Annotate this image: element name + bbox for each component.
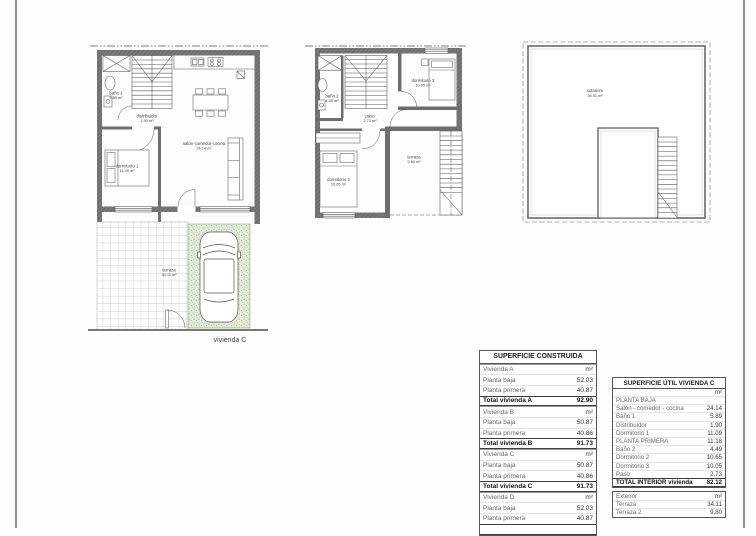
row-value: 82.12 xyxy=(707,479,722,486)
gate-leaf xyxy=(166,310,169,328)
room-area-dormitorio3: 10.05 m² xyxy=(415,83,431,88)
row-label: Planta baja xyxy=(483,377,516,384)
table-row-total: Total vivienda B91.73 xyxy=(480,438,596,449)
stairs xyxy=(132,56,172,109)
room-area-dormitorio1: 11.09 m² xyxy=(119,168,135,173)
row-value: 34.11 xyxy=(707,501,722,508)
row-label: Total vivienda B xyxy=(483,440,532,447)
row-label: Terraza xyxy=(616,501,636,508)
room-area-salon: 24.14 m² xyxy=(196,146,212,151)
row-value: 40.87 xyxy=(577,387,593,394)
room-area-banyo1: 5.89 m² xyxy=(109,95,123,100)
row-label: PLANTA BAJA xyxy=(616,397,656,404)
row-label: Dormitorio 2 xyxy=(616,454,649,461)
sheet-border-right xyxy=(743,0,745,528)
toilet xyxy=(318,100,325,110)
table-row: Dormitorio 111.09 xyxy=(613,429,725,437)
row-value: 91.73 xyxy=(577,440,593,447)
room-area-dormitorio2: 10.65 m² xyxy=(331,182,347,187)
row-value: 11.18 xyxy=(707,438,722,445)
room-area-distribuidor: 1.90 m² xyxy=(140,118,154,123)
closet-wardrobe xyxy=(318,56,342,71)
car-top-view xyxy=(198,232,241,322)
table-row: Terraza34.11 xyxy=(613,500,725,508)
sofa xyxy=(228,138,243,200)
sheet-border-left xyxy=(15,0,17,528)
row-label: Vivienda D xyxy=(483,494,514,501)
row-label: Planta baja xyxy=(483,462,516,469)
row-value: 50.87 xyxy=(577,462,593,469)
row-label: Exterior xyxy=(616,493,637,500)
row-label: Planta primera xyxy=(483,387,525,394)
table-superficie-construida: SUPERFICIE CONSTRUIDA Vivienda Am² Plant… xyxy=(479,350,597,536)
row-value: m² xyxy=(715,389,722,396)
stairs xyxy=(345,56,387,109)
table-row-total: TOTAL INTERIOR vivienda82.12 xyxy=(613,478,725,488)
page: { "sheet": { "caption_vivienda": "vivien… xyxy=(0,0,756,528)
door-opening xyxy=(178,206,196,213)
door-swing xyxy=(362,131,380,149)
plan-caption: vivienda C xyxy=(214,337,247,344)
floorplan-solarium: solarium 35.91 m² xyxy=(518,36,718,228)
door-swing xyxy=(402,92,417,107)
row-value: 1.90 xyxy=(710,422,722,429)
table-row: Planta primera40.87 xyxy=(480,513,596,524)
table-row-total: Total vivienda A92.90 xyxy=(480,396,596,407)
washbasin xyxy=(105,76,115,90)
row-value: 92.90 xyxy=(577,397,593,404)
row-value: 10.05 xyxy=(707,463,722,470)
row-value: 91.73 xyxy=(577,483,593,490)
closet-wardrobe xyxy=(103,56,130,72)
room-area-terraza: 34.11 m² xyxy=(161,272,177,277)
row-value: 10.65 xyxy=(707,454,722,461)
table-row: Dormitorio 210.65 xyxy=(613,453,725,461)
row-label: Planta baja xyxy=(483,505,516,512)
table-row: Salón - comedor - cocina24.14 xyxy=(613,404,725,412)
row-label: Vivienda C xyxy=(483,451,514,458)
stairwell-void xyxy=(598,128,658,218)
table-row: Vivienda Am² xyxy=(480,364,596,375)
row-label: Paso xyxy=(616,471,630,478)
row-label: TOTAL INTERIOR vivienda xyxy=(616,479,693,486)
table-row: Baño 24.49 xyxy=(613,445,725,453)
door-swing xyxy=(390,110,407,127)
table-row-unit: m² xyxy=(613,389,725,396)
row-value: m² xyxy=(585,494,593,501)
table-row: Baño 15.89 xyxy=(613,412,725,420)
door-swing xyxy=(118,106,132,120)
table-title: SUPERFICIE CONSTRUIDA xyxy=(480,351,596,364)
washbasin xyxy=(318,79,327,92)
table-row-total: Total vivienda C91.73 xyxy=(480,481,596,492)
row-label: Planta primera xyxy=(483,473,525,480)
row-value: 40.86 xyxy=(577,430,593,437)
row-label: Terraza 2 xyxy=(616,509,641,516)
table-row: PLANTA PRIMERA11.18 xyxy=(613,437,725,445)
dining-table xyxy=(193,89,228,116)
row-value: 52.03 xyxy=(577,377,593,384)
table-row: Planta baja52.03 xyxy=(480,502,596,513)
table-row: PLANTA BAJA xyxy=(613,396,725,404)
row-value: 11.09 xyxy=(707,430,722,437)
row-label: Distribuidor xyxy=(616,422,647,429)
row-value: 50.87 xyxy=(577,419,593,426)
row-value: 2.73 xyxy=(710,471,722,478)
row-value: 52.03 xyxy=(577,505,593,512)
row-label: PLANTA PRIMERA xyxy=(616,438,668,445)
floorplan-planta-baja: baño 1 5.89 m² distribuidor 1.90 m² saló… xyxy=(88,38,278,352)
row-value: 40.86 xyxy=(577,473,593,480)
door-swing xyxy=(132,130,154,152)
table-row: Vivienda Cm² xyxy=(480,449,596,460)
table-row: Paso2.73 xyxy=(613,470,725,478)
stairs-to-solarium xyxy=(440,131,462,215)
table-row: Dormitorio 310.05 xyxy=(613,462,725,470)
table-title: SUPERFICIE ÚTIL VIVIENDA C xyxy=(613,378,725,389)
row-label: Salón - comedor - cocina xyxy=(616,405,684,412)
row-value: 40.87 xyxy=(577,515,593,522)
table-row: Exteriorm² xyxy=(613,492,725,500)
row-label: Planta primera xyxy=(483,430,525,437)
room-area-solarium: 35.91 m² xyxy=(587,93,603,98)
row-value: 5.89 xyxy=(710,413,722,420)
table-row: Vivienda Dm² xyxy=(480,492,596,503)
table-row: Planta baja52.03 xyxy=(480,374,596,385)
row-label: Dormitorio 3 xyxy=(616,463,649,470)
table-row: Terraza 29.80 xyxy=(613,508,725,516)
row-value: m² xyxy=(585,366,593,373)
row-value: 4.49 xyxy=(710,446,722,453)
row-value: 9.80 xyxy=(710,509,722,516)
table-row-clipped xyxy=(480,524,596,535)
room-area-paso: 2.73 m² xyxy=(363,118,377,123)
row-value: m² xyxy=(585,451,593,458)
row-value: m² xyxy=(715,493,722,500)
table-row: Vivienda Bm² xyxy=(480,406,596,417)
room-area-banyo2: 4.49 m² xyxy=(325,98,339,103)
table-row: Planta primera40.87 xyxy=(480,385,596,396)
row-value: m² xyxy=(585,409,593,416)
row-label: Vivienda A xyxy=(483,366,514,373)
row-label: Total vivienda C xyxy=(483,483,532,490)
row-label: Dormitorio 1 xyxy=(616,430,649,437)
floorplan-planta-primera: baño 2 4.49 m² paso 2.73 m² dormitorio 3… xyxy=(303,38,473,228)
table-row: Distribuidor1.90 xyxy=(613,421,725,429)
table-row: Planta baja50.87 xyxy=(480,417,596,428)
row-label: Total vivienda A xyxy=(483,397,532,404)
table-row: Planta primera40.86 xyxy=(480,428,596,439)
kitchen-counter xyxy=(174,56,255,79)
row-value: 24.14 xyxy=(707,405,722,412)
row-label: Baño 1 xyxy=(616,413,635,420)
room-area-terraza: 9.80 m² xyxy=(407,159,421,164)
wardrobe xyxy=(316,133,360,143)
table-row: Planta baja50.87 xyxy=(480,460,596,471)
row-label: Baño 2 xyxy=(616,446,635,453)
stairs-arrival xyxy=(658,137,677,218)
door-swing xyxy=(178,190,195,207)
table-superficie-util: SUPERFICIE ÚTIL VIVIENDA C m² PLANTA BAJ… xyxy=(612,377,726,488)
table-superficie-util-exterior: Exteriorm² Terraza34.11 Terraza 29.80 xyxy=(612,491,726,518)
table-row: Planta primera40.86 xyxy=(480,470,596,481)
row-label: Planta baja xyxy=(483,419,516,426)
row-label: Planta primera xyxy=(483,515,525,522)
row-label: Vivienda B xyxy=(483,409,514,416)
